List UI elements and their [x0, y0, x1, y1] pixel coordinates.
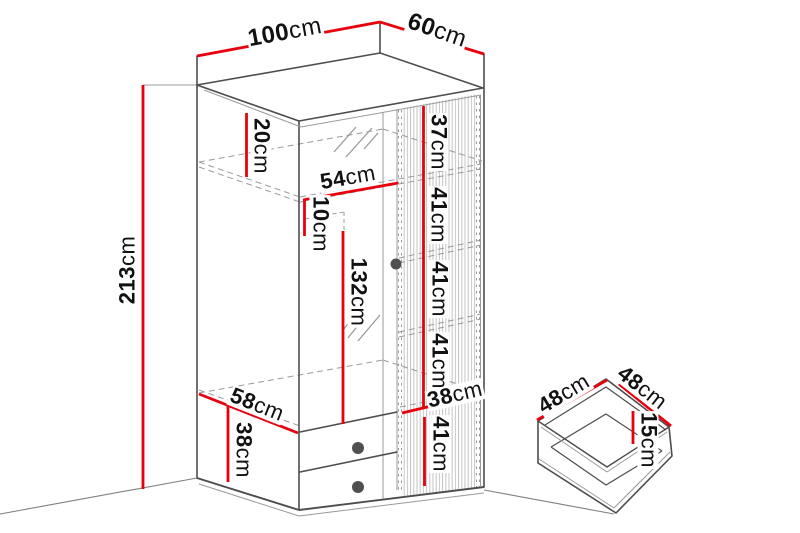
- dim-label-height: 213cm: [118, 235, 139, 306]
- door-knob: [391, 259, 402, 270]
- dim-label-shelf-4: 41cm: [429, 332, 450, 390]
- dim-label-top-shelf: 20cm: [251, 117, 272, 175]
- dim-label-shelf-5: 41cm: [430, 415, 451, 473]
- drawer-knob-top: [352, 442, 364, 454]
- floor-lines: [0, 85, 614, 514]
- furniture-dimension-diagram: 100cm 60cm 213cm 20cm 54cm 10cm 132cm 37…: [0, 0, 800, 533]
- drawer-knob-bottom: [352, 481, 364, 493]
- dim-label-drawer-zone: 38cm: [233, 421, 254, 479]
- dim-label-shelf-2: 41cm: [428, 186, 449, 244]
- dim-label-hanging-height: 132cm: [348, 257, 369, 328]
- dim-label-shelf-3: 41cm: [429, 260, 450, 318]
- dim-label-shelf-1: 37cm: [428, 113, 449, 171]
- dim-label-rail-offset: 10cm: [310, 195, 331, 253]
- dim-label-drawer-height: 15cm: [638, 411, 659, 469]
